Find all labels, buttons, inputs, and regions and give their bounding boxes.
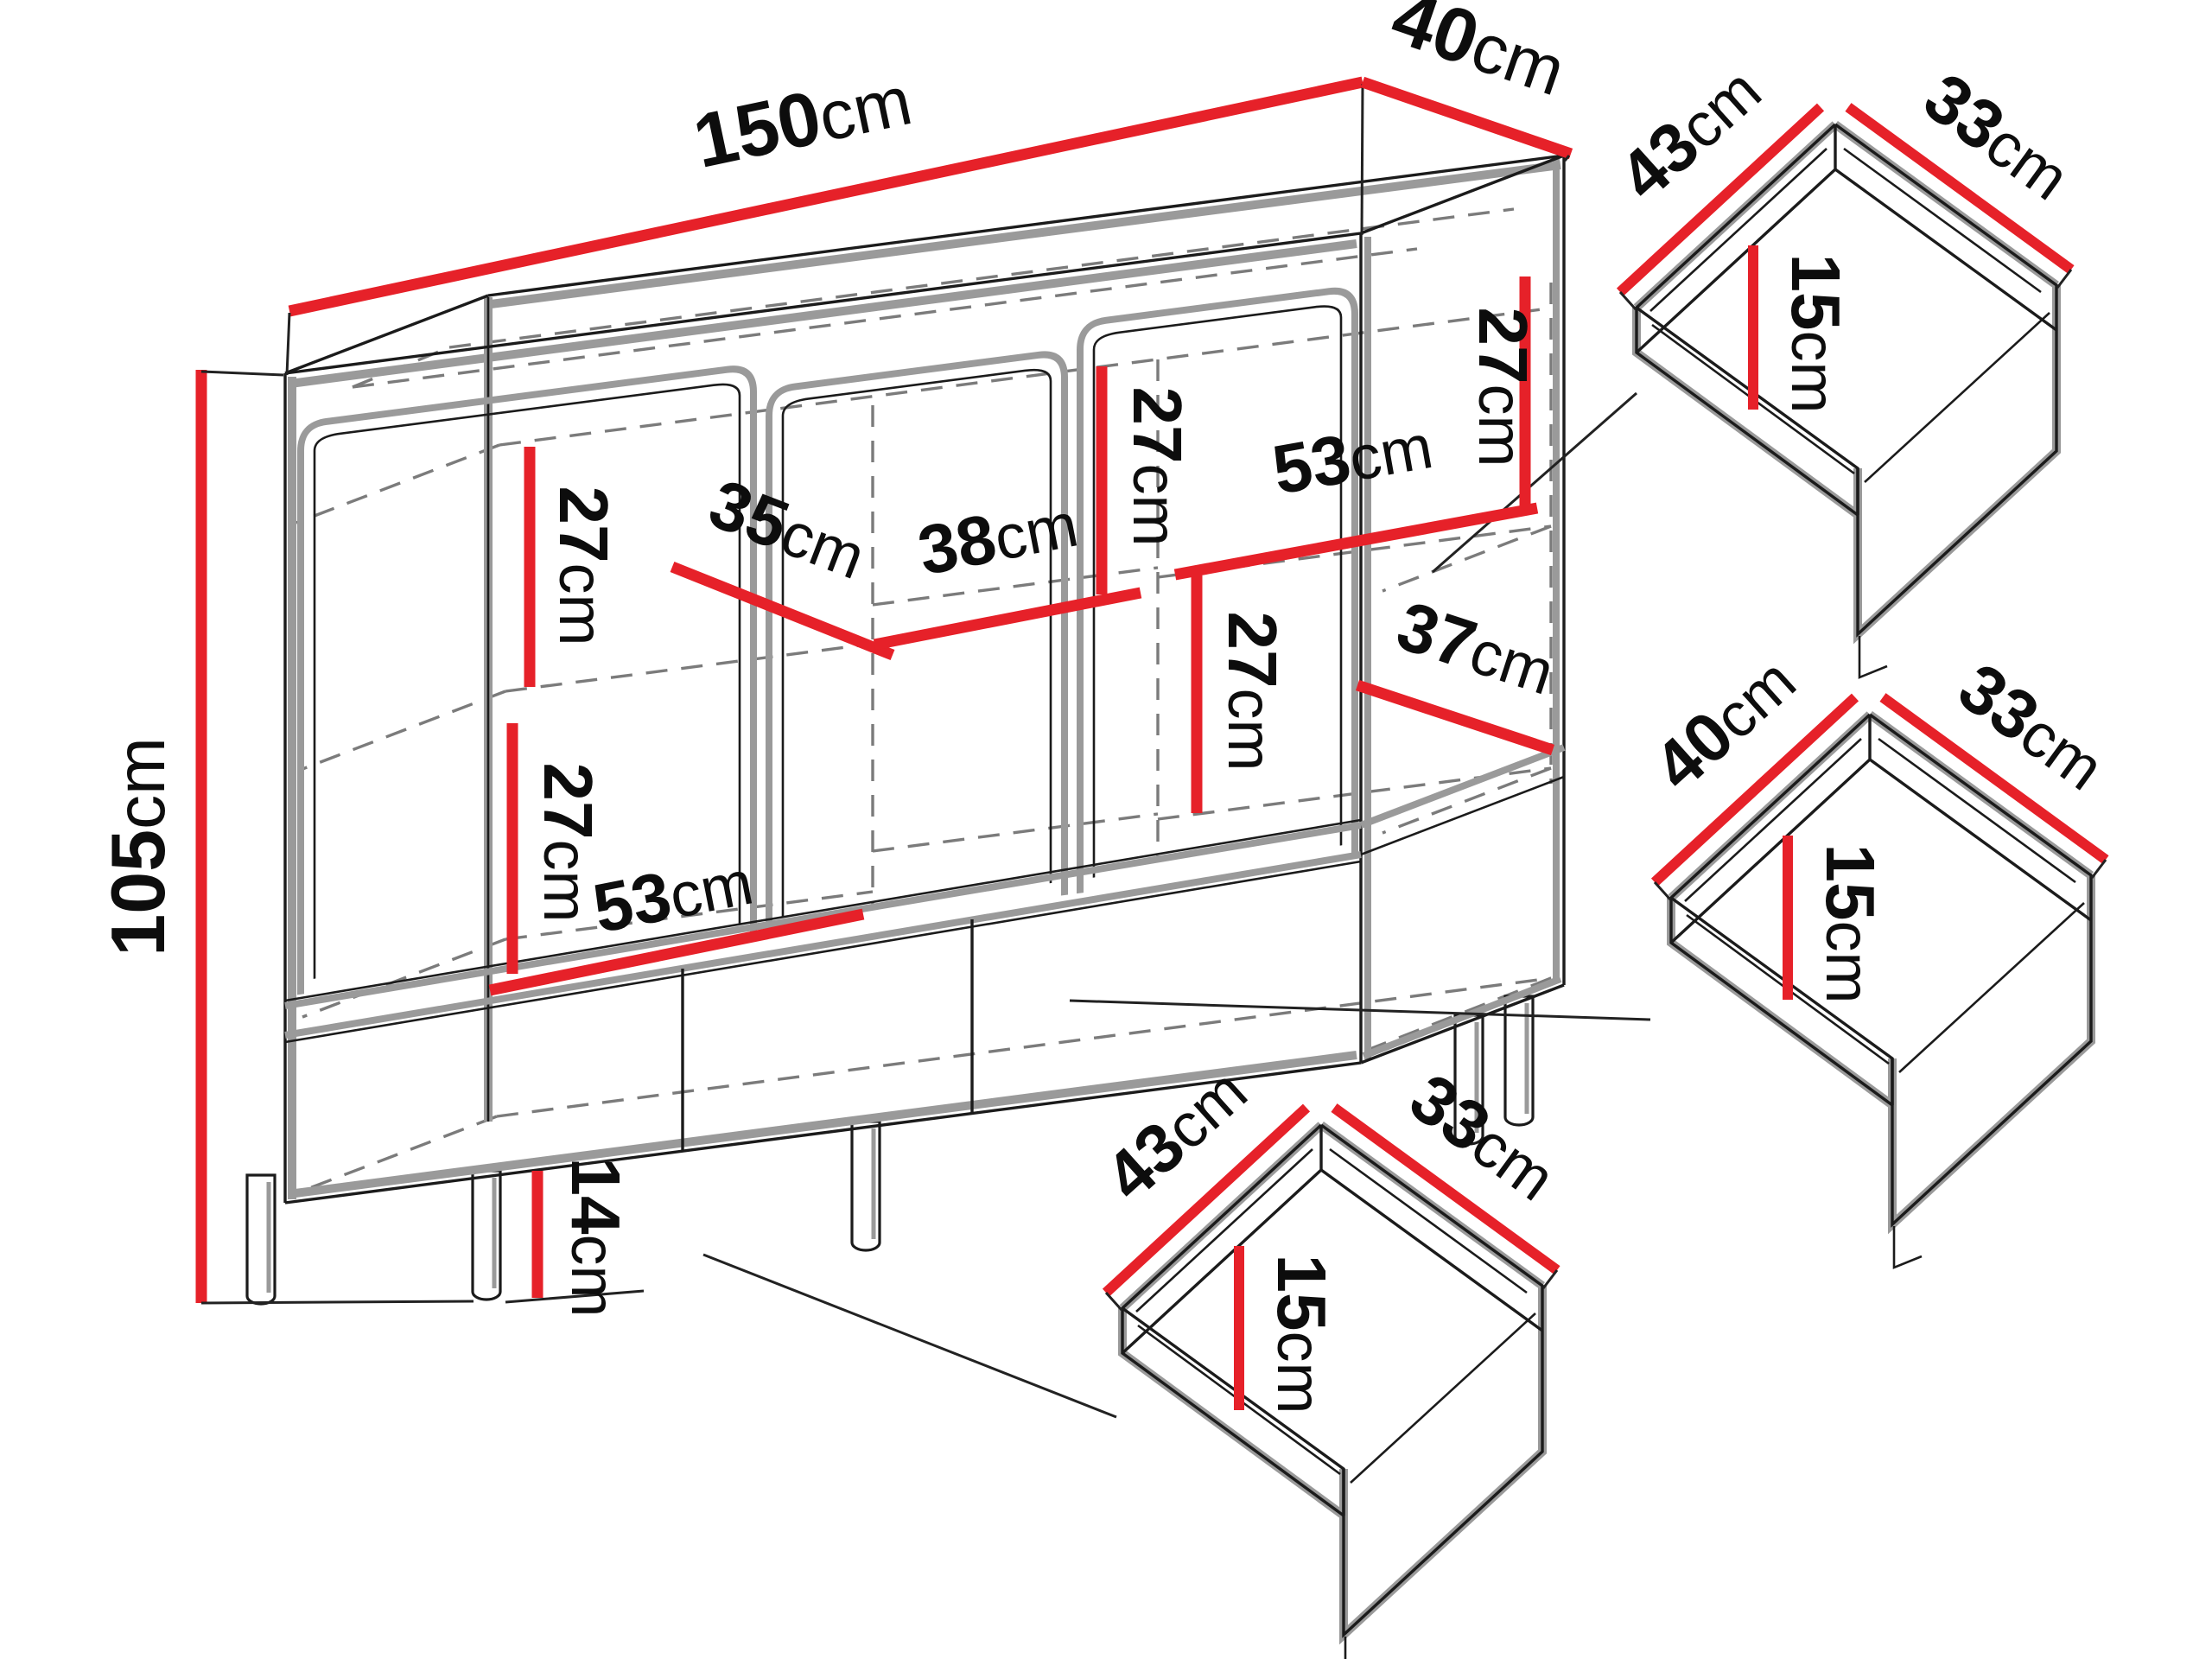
mid-rail-lower-line [285, 861, 1361, 1042]
drawer-height-label: 15cm [1812, 844, 1889, 1004]
furniture-dimension-diagram: 150cm 40cm 105cm 14cm 27cm 35cm 38cm 27c… [0, 0, 2212, 1659]
dimension-label: 27cm [1214, 612, 1291, 772]
dimension-label: 38cm [912, 484, 1084, 590]
leg-front-middle [852, 1122, 880, 1250]
top-right-edge [1361, 156, 1564, 233]
mid-rail-upper-line [285, 820, 1361, 1001]
dimension-label: 27cm [545, 486, 622, 646]
drawer-middle-right: 40cm 33cm 15cm [1639, 641, 2120, 1268]
dimension-center-27: 27cm [1197, 575, 1291, 813]
top-back-edge [488, 156, 1564, 296]
mid-rail-lower [285, 855, 1361, 1035]
extension-tick [201, 372, 283, 375]
cabinet-bottom-section [285, 747, 1564, 1151]
width-dimension-label: 150cm [686, 54, 918, 184]
dimension-label: 27cm [1119, 387, 1196, 547]
drawer-width-label: 40cm [1639, 641, 1809, 805]
leg-front-left [473, 1171, 500, 1300]
dimension-upper-middle-27: 27cm [1102, 366, 1196, 594]
dimension-upper-right-27: 27cm [1465, 276, 1541, 510]
drawer-height-label: 15cm [1263, 1255, 1340, 1414]
dimension-label: 37cm [1389, 587, 1564, 709]
diagram-canvas: 150cm 40cm 105cm 14cm 27cm 35cm 38cm 27c… [0, 0, 2212, 1659]
drawer-depth-label: 33cm [1910, 58, 2085, 214]
extension-tick [1362, 84, 1363, 235]
depth-dash [302, 691, 505, 769]
leg-back-left [247, 1175, 275, 1304]
top-front-edge [285, 233, 1361, 373]
drawer-height-label: 15cm [1777, 254, 1854, 414]
dimension-lower-right-37: 37cm [1357, 587, 1564, 750]
dimension-upper-left-27: 27cm [530, 447, 622, 687]
depth-dash [296, 445, 499, 523]
dimension-label: 35cm [700, 465, 877, 594]
mid-rail-upper [285, 825, 1361, 1006]
height-dimension-label: 105cm [95, 737, 181, 956]
shelf-dash-left-1 [505, 644, 873, 691]
drawer-depth-label: 33cm [1945, 648, 2120, 804]
leg-dimension-label: 14cm [557, 1158, 634, 1318]
drawer-width-label: 43cm [1605, 51, 1775, 215]
drawer-top-right: 43cm 33cm 15cm [1605, 51, 2085, 677]
depth-dash [1382, 768, 1551, 833]
connector-bottom-drawer [703, 1255, 1116, 1417]
dimension-label: 27cm [1465, 308, 1541, 467]
dimension-depth-40: 40cm [1363, 0, 1577, 161]
dimension-leg-14: 14cm [505, 1158, 644, 1318]
door-right [1080, 288, 1355, 893]
top-face-dash [353, 249, 1417, 387]
door-middle-inner-line [783, 367, 1051, 918]
extension-tick [201, 1301, 474, 1303]
extension-tick [287, 313, 289, 375]
shelf-dash-middle-2 [873, 814, 1158, 851]
mid-rail-right-face [1361, 747, 1564, 825]
drawer-bottom-center: 43cm 33cm 15cm [1090, 1052, 1571, 1659]
